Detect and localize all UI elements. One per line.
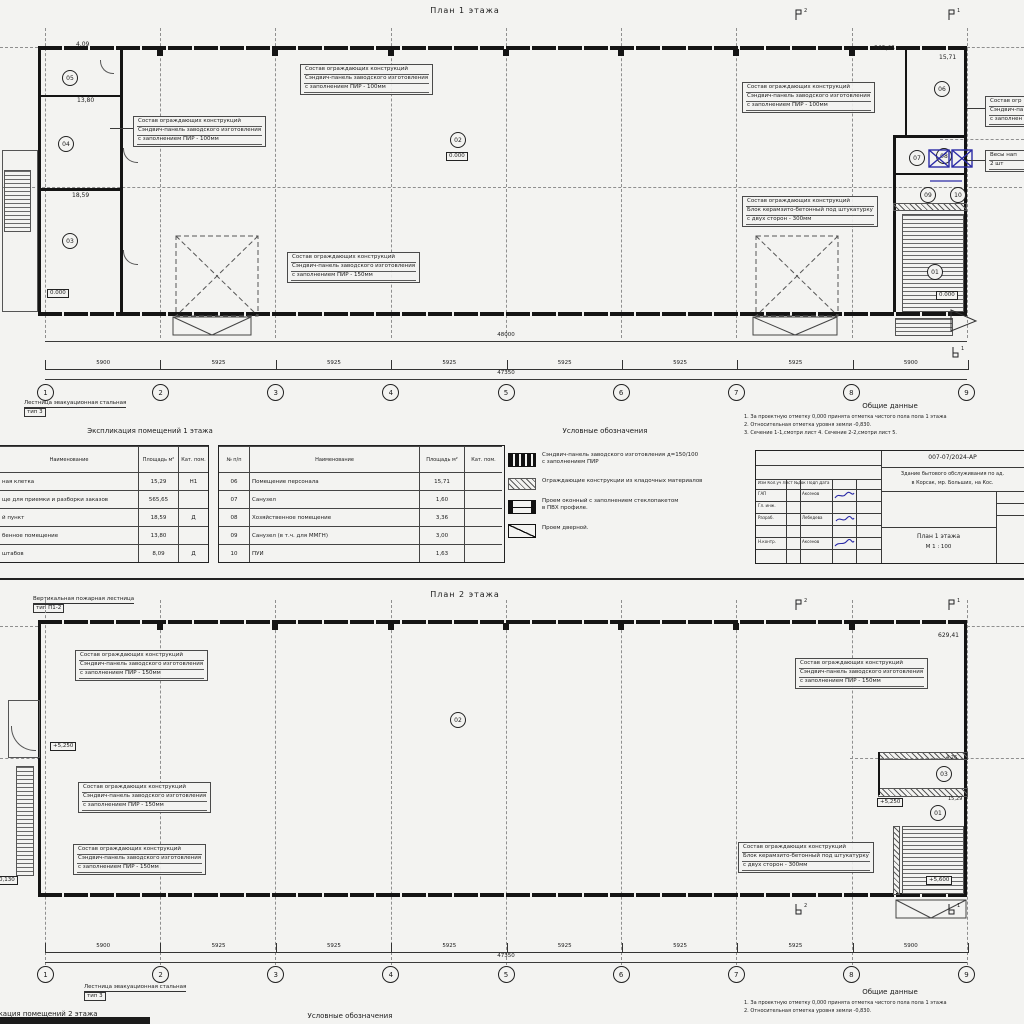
section-mark: 2 xyxy=(793,903,807,916)
callout-line: Состав ограждающих конструкций xyxy=(137,118,262,127)
callout-line: Состав ограждающих конструкций xyxy=(742,844,870,853)
room-area-cell: 565,65 xyxy=(138,490,178,508)
callout-line: с двух сторон - 300мм xyxy=(742,862,870,871)
callout-note: Состав ограждающих конструкций Сэндвич-п… xyxy=(287,252,420,283)
grid-bubble-row: 123456789 xyxy=(37,384,975,401)
callout-line: Состав ограждающих конструкций xyxy=(746,198,874,207)
callout-line: Сэндвич-панель заводского изготовления xyxy=(746,93,871,102)
wall xyxy=(38,620,41,897)
stamp-role: Н.контр. xyxy=(758,540,776,545)
callout-line: с двух сторон - 300мм xyxy=(746,216,874,225)
stamp-line xyxy=(756,479,881,480)
grid-axis-line xyxy=(967,600,968,965)
legend-line: с заполнением ПИР xyxy=(542,459,698,466)
section-flag-icon xyxy=(946,598,956,611)
callout-note: Состав ограждающих конструкций Блок кера… xyxy=(742,196,878,227)
callout-line: Состав ограждающих конструкций xyxy=(79,652,204,661)
room-area-cell: 15,71 xyxy=(419,472,464,490)
section-mark: 1 xyxy=(950,346,964,359)
callout-note-clipped: Весы нап 2 шт xyxy=(985,150,1024,172)
general-note: 2. Относительная отметка уровня земли -0… xyxy=(744,1008,1022,1016)
callout-line: Сэндвич-панель заводского изготовления xyxy=(77,855,202,864)
masonry-wall-hatch xyxy=(893,203,967,211)
room-category-cell xyxy=(178,526,208,544)
legend-symbol-door xyxy=(508,524,536,538)
stamp-role: Гл. инж. xyxy=(758,504,776,509)
stamp-line xyxy=(881,467,1024,468)
grid-axis-line xyxy=(967,47,1024,48)
fire-ladder-text: Вертикальная пожарная лестница xyxy=(33,596,134,604)
callout-line: с заполнен xyxy=(989,116,1024,125)
section-mark: 2 xyxy=(793,598,807,611)
elevation-mark: +5,250 xyxy=(50,742,76,751)
stamp-scale: М 1 : 100 xyxy=(881,544,996,551)
section-flag-icon xyxy=(946,8,956,21)
dimension-line xyxy=(45,379,967,380)
grid-axis-bubble: 1 xyxy=(37,966,54,983)
stamp-header-row: Изм Кол.уч Лист №док Подп Дата xyxy=(758,481,879,486)
stamp-name: Аксенов xyxy=(802,540,819,545)
grid-axis-line xyxy=(2,187,1022,188)
grid-axis-line xyxy=(967,626,1024,627)
room-number-cell: 09 xyxy=(219,526,249,544)
callout-line: Состав огр xyxy=(989,98,1024,107)
room-area-cell: 18,59 xyxy=(138,508,178,526)
room-category-cell xyxy=(464,490,502,508)
elevation-mark: 0.000 xyxy=(446,152,468,161)
room-category-cell xyxy=(464,544,502,562)
leader-line xyxy=(110,128,133,129)
partition-wall xyxy=(893,137,896,312)
legend-symbol-window xyxy=(508,500,536,514)
grid-axis-bubble: 8 xyxy=(843,384,860,401)
pier-mark xyxy=(272,49,278,56)
project-name-line: в Корсак, мр. Больших, на Кос. xyxy=(881,480,1024,487)
elevation-mark: +5,250 xyxy=(877,798,903,807)
grid-axis-line xyxy=(940,139,1024,140)
stair-type-tag: тип 3 xyxy=(24,408,46,417)
room-number-bubble: 06 xyxy=(934,81,950,97)
pier-mark xyxy=(849,623,855,630)
grid-axis-line xyxy=(736,28,737,338)
callout-note: Состав ограждающих конструкций Сэндвич-п… xyxy=(78,782,211,813)
grid-axis-bubble: 2 xyxy=(152,384,169,401)
room-number-cell: 06 xyxy=(219,472,249,490)
callout-line: Состав ограждающих конструкций xyxy=(746,84,871,93)
legend-line: в ПВХ профиле. xyxy=(542,505,678,512)
ramp-arrow xyxy=(950,309,978,333)
title-block: Изм Кол.уч Лист №док Подп Дата ГАП Аксен… xyxy=(755,450,1024,564)
legend-symbol-sandwich-panel xyxy=(508,453,536,467)
dimension-label: 5900 xyxy=(46,943,161,952)
callout-note: Состав ограждающих конструкций Блок кера… xyxy=(738,842,874,873)
dimension-label: 5925 xyxy=(738,943,853,952)
callout-line: Сэндвич-па xyxy=(989,107,1024,116)
grid-axis-line xyxy=(45,28,46,338)
callout-note: Состав ограждающих конструкций Сэндвич-п… xyxy=(742,82,875,113)
partition-wall xyxy=(878,752,880,795)
room-name-cell: ще для приемки и разборки заказов xyxy=(0,490,138,508)
callout-line: Сэндвич-панель заводского изготовления xyxy=(79,661,204,670)
callout-line: с заполнением ПИР - 100мм xyxy=(746,102,871,111)
callout-line: с заполнением ПИР - 150мм xyxy=(79,670,204,679)
stamp-drawing-title: План 1 этажа xyxy=(881,533,996,541)
stamp-line xyxy=(756,501,881,502)
section-flag-icon xyxy=(793,598,803,611)
general-note: 3. Сечение 1-1,смотри лист 4. Сечение 2-… xyxy=(744,430,1022,438)
section-mark: 2 xyxy=(793,8,807,21)
grid-axis-line xyxy=(506,28,507,338)
stamp-line xyxy=(881,491,1024,492)
table-edge-bar xyxy=(0,1017,150,1024)
pier-mark xyxy=(618,623,624,630)
room-number-cell: 10 xyxy=(219,544,249,562)
grid-axis-bubble: 4 xyxy=(382,384,399,401)
room-area-cell: 1,63 xyxy=(419,544,464,562)
stair-note-text: Лестница эвакуационная стальная xyxy=(84,984,186,992)
column-header: Кат. пом. xyxy=(464,446,502,472)
pier-mark xyxy=(272,623,278,630)
grid-axis-line xyxy=(275,28,276,338)
legend-line: Ограждающие конструкции из кладочных мат… xyxy=(542,478,702,485)
dimension-label: 5925 xyxy=(508,943,623,952)
elevation-mark: +5,600 xyxy=(926,876,952,885)
partition-wall xyxy=(893,135,967,138)
room-number-bubble: 03 xyxy=(936,766,952,782)
explication1-title: Экспликация помещений 1 этажа xyxy=(40,427,260,436)
section-mark: 1 xyxy=(946,598,960,611)
section-number: 1 xyxy=(961,346,964,353)
grid-axis-line xyxy=(852,600,853,965)
sheet-divider xyxy=(0,578,1024,580)
stamp-line xyxy=(856,479,857,563)
callout-line: Сэндвич-панель заводского изготовления xyxy=(799,669,924,678)
window-symbol-line xyxy=(509,507,535,508)
dimension-label: 5925 xyxy=(392,360,507,369)
wall xyxy=(38,893,967,897)
column-header: Наименование xyxy=(249,446,419,472)
column-header: Наименование xyxy=(0,446,138,472)
dashed-canopy-square xyxy=(175,235,259,317)
dimension-label: 5925 xyxy=(277,360,392,369)
room-number-bubble: 09 xyxy=(920,187,936,203)
section-flag-icon xyxy=(950,346,960,359)
room-number-bubble: 04 xyxy=(58,136,74,152)
general2-title: Общие данные xyxy=(760,988,1020,997)
legend-item-text: Проем дверной. xyxy=(542,525,588,532)
pier-mark xyxy=(618,49,624,56)
door-swing-arc xyxy=(123,250,138,265)
callout-note: Состав ограждающих конструкций Сэндвич-п… xyxy=(73,844,206,875)
legend-line: Сэндвич-панель заводского изготовления д… xyxy=(542,452,698,459)
room-name-cell: й пункт xyxy=(0,508,138,526)
pier-mark xyxy=(157,49,163,56)
explication1-table-right: № п/п Наименование Площадь м² Кат. пом. … xyxy=(218,445,505,563)
callout-line: Состав ограждающих конструкций xyxy=(82,784,207,793)
section-number: 2 xyxy=(804,8,807,15)
section-number: 1 xyxy=(957,903,960,910)
column-header: Площадь м² xyxy=(419,446,464,472)
grid-axis-line xyxy=(506,600,507,965)
stamp-line xyxy=(996,491,997,563)
callout-line: с заполнением ПИР - 150мм xyxy=(799,678,924,687)
grid-axis-bubble: 4 xyxy=(382,966,399,983)
dimension-line xyxy=(45,962,967,963)
room-area-cell: 15,29 xyxy=(138,472,178,490)
dimension-row: 59005925592559255925592559255900 xyxy=(45,360,969,370)
room-category-cell: Д xyxy=(178,508,208,526)
legend-line: Проем дверной. xyxy=(542,525,588,532)
legend-symbol-masonry xyxy=(508,478,536,490)
callout-line: Состав ограждающих конструкций xyxy=(799,660,924,669)
signature xyxy=(834,491,855,500)
section-number: 1 xyxy=(957,8,960,15)
signature xyxy=(834,515,855,524)
callout-line: Блок керамзито-бетонный под штукатурку xyxy=(742,853,870,862)
room-name-cell: Хозяйственное помещение xyxy=(249,508,419,526)
callout-line: с заполнением ПИР - 100мм xyxy=(304,84,429,93)
grid-axis-line xyxy=(736,600,737,965)
room-category-cell xyxy=(464,526,502,544)
dimension-label: 5900 xyxy=(46,360,161,369)
grid-axis-bubble: 5 xyxy=(498,384,515,401)
door-swing-arc xyxy=(100,60,114,74)
dimension-label: 5900 xyxy=(854,360,968,369)
section-flag-icon xyxy=(793,903,803,916)
callout-line: Сэндвич-панель заводского изготовления xyxy=(82,793,207,802)
dimension-label: 5900 xyxy=(854,943,968,952)
grid-axis-line xyxy=(45,600,46,965)
callout-line: с заполнением ПИР - 150мм xyxy=(291,272,416,281)
partition-wall xyxy=(38,188,122,191)
stamp-line xyxy=(996,515,1024,516)
grid-axis-bubble: 3 xyxy=(267,966,284,983)
callout-line: Сэндвич-панель заводского изготовления xyxy=(291,263,416,272)
callout-note: Состав ограждающих конструкций Сэндвич-п… xyxy=(300,64,433,95)
pier-mark xyxy=(388,49,394,56)
pier-mark xyxy=(388,623,394,630)
pier-mark xyxy=(157,623,163,630)
dimension-row: 59005925592559255925592559255900 xyxy=(45,943,969,953)
section-mark: 1 xyxy=(946,903,960,916)
grid-axis-bubble: 6 xyxy=(613,384,630,401)
dimension-label: 5925 xyxy=(508,360,623,369)
legend-item-text: Сэндвич-панель заводского изготовления д… xyxy=(542,452,698,466)
blue-cross-marks xyxy=(928,148,974,188)
area-label: 565,65 xyxy=(874,45,895,53)
column-header: Площадь м² xyxy=(138,446,178,472)
leader-line xyxy=(967,108,985,109)
area-label: 4,09 xyxy=(76,41,89,49)
section-number: 1 xyxy=(957,598,960,605)
section-number: 2 xyxy=(804,903,807,910)
fire-ladder-type-tag: тип П1-2 xyxy=(33,604,64,613)
elevation-mark: -0,130 xyxy=(0,876,18,885)
room-number-cell: 08 xyxy=(219,508,249,526)
general-note: 2. Относительная отметка уровня земли -0… xyxy=(744,422,1022,430)
grid-axis-bubble: 5 xyxy=(498,966,515,983)
section-number: 2 xyxy=(804,598,807,605)
grid-axis-bubble: 1 xyxy=(37,384,54,401)
stamp-line xyxy=(881,527,996,528)
exterior-ladder-hatch xyxy=(16,766,34,876)
callout-note: Состав ограждающих конструкций Сэндвич-п… xyxy=(133,116,266,147)
column-header: Кат. пом. xyxy=(178,446,208,472)
stamp-line xyxy=(756,465,881,466)
grid-axis-line xyxy=(160,28,161,338)
stamp-line xyxy=(756,513,881,514)
room-number-bubble: 05 xyxy=(62,70,78,86)
document-number: 007-07/2024-АР xyxy=(881,454,1024,462)
overall-dimension: 48000 xyxy=(45,332,967,339)
overall-dimension: 47350 xyxy=(45,953,967,960)
legend-title: Условные обозначения xyxy=(505,427,705,436)
general-note: 1. За проектную отметку 0,000 принята от… xyxy=(744,414,1022,422)
room-number-bubble: 03 xyxy=(62,233,78,249)
pier-mark xyxy=(733,623,739,630)
column-header: № п/п xyxy=(219,446,249,472)
stamp-line xyxy=(756,537,881,538)
room-category-cell xyxy=(464,472,502,490)
callout-note-clipped: Состав огр Сэндвич-па с заполнен xyxy=(985,96,1024,127)
area-label: 18,59 xyxy=(72,192,89,200)
overall-dimension: 47350 xyxy=(45,370,967,377)
grid-axis-bubble: 7 xyxy=(728,384,745,401)
legend-item-text: Проем оконный с заполнением стеклопакето… xyxy=(542,498,678,512)
elevation-mark: 0.000 xyxy=(936,291,958,300)
callout-line: 2 шт xyxy=(989,161,1024,170)
fire-ladder-note: Вертикальная пожарная лестница тип П1-2 xyxy=(33,596,134,613)
room-category-cell xyxy=(178,490,208,508)
wall xyxy=(38,46,41,316)
stair-note: Лестница эвакуационная стальная тип 3 xyxy=(24,400,126,417)
callout-note: Состав ограждающих конструкций Сэндвич-п… xyxy=(795,658,928,689)
drawing-sheet: { "colors": {"paper":"#f3f3f1","ink":"#1… xyxy=(0,0,1024,1024)
signature xyxy=(834,539,855,548)
callout-line: Состав ограждающих конструкций xyxy=(77,846,202,855)
room-number-cell: 07 xyxy=(219,490,249,508)
door-swing-arc xyxy=(123,148,138,163)
grid-axis-bubble: 3 xyxy=(267,384,284,401)
pier-mark xyxy=(503,623,509,630)
dimension-label: 5925 xyxy=(277,943,392,952)
callout-line: Сэндвич-панель заводского изготовления xyxy=(137,127,262,136)
callout-line: Состав ограждающих конструкций xyxy=(304,66,429,75)
room-number-bubble: 10 xyxy=(950,187,966,203)
room-number-bubble: 07 xyxy=(909,150,925,166)
room-area-cell: 3,00 xyxy=(419,526,464,544)
room-number-bubble: 02 xyxy=(450,132,466,148)
callout-line: Блок керамзито-бетонный под штукатурку xyxy=(746,207,874,216)
grid-bubble-row: 123456789 xyxy=(37,966,975,983)
room-number-bubble: 01 xyxy=(930,805,946,821)
section-flag-icon xyxy=(793,8,803,21)
room-name-cell: штабов xyxy=(0,544,138,562)
grid-axis-line xyxy=(0,626,38,627)
grid-axis-bubble: 9 xyxy=(958,966,975,983)
room-category-cell xyxy=(464,508,502,526)
dimension-label: 5925 xyxy=(392,943,507,952)
room-name-cell: ПУИ xyxy=(249,544,419,562)
stamp-line xyxy=(800,479,801,563)
general2-notes: 1. За проектную отметку 0,000 принята от… xyxy=(744,1000,1022,1024)
room-name-cell: Санузел (в т.ч. для ММГН) xyxy=(249,526,419,544)
plan2-title: План 2 этажа xyxy=(0,590,930,600)
section-flag-icon xyxy=(946,903,956,916)
legend-line: Проем оконный с заполнением стеклопакето… xyxy=(542,498,678,505)
legend2-title: Условные обозначения xyxy=(250,1012,450,1021)
dashed-canopy-square xyxy=(755,235,839,317)
pier-mark xyxy=(733,49,739,56)
callout-line: Весы нап xyxy=(989,152,1024,161)
room-area-cell: 3,36 xyxy=(419,508,464,526)
callout-line: Сэндвич-панель заводского изготовления xyxy=(304,75,429,84)
stair-type-tag: тип 3 xyxy=(84,992,106,1001)
room-number-bubble: 01 xyxy=(927,264,943,280)
callout-line: Состав ограждающих конструкций xyxy=(291,254,416,263)
area-label: 4,26 xyxy=(946,755,957,762)
dimension-label: 5925 xyxy=(623,360,738,369)
callout-line: с заполнением ПИР - 150мм xyxy=(77,864,202,873)
project-name-line: Здание бытового обслуживания по ад. xyxy=(881,471,1024,478)
grid-axis-line xyxy=(621,600,622,965)
masonry-wall-hatch xyxy=(893,826,900,895)
general-data-title: Общие данные xyxy=(760,402,1020,411)
callout-line: с заполнением ПИР - 100мм xyxy=(137,136,262,145)
area-label: 13,80 xyxy=(77,97,94,105)
room-number-bubble: 02 xyxy=(450,712,466,728)
stair-note-text: Лестница эвакуационная стальная xyxy=(24,400,126,408)
dimension-line xyxy=(45,341,967,342)
stair-note: Лестница эвакуационная стальная тип 3 xyxy=(84,984,186,1001)
stamp-line xyxy=(756,489,881,490)
plan1-title: План 1 этажа xyxy=(0,6,930,16)
callout-line: с заполнением ПИР - 150мм xyxy=(82,802,207,811)
explication1-table-left: Наименование Площадь м² Кат. пом. ная кл… xyxy=(0,445,209,563)
dimension-label: 5925 xyxy=(161,360,276,369)
pier-mark xyxy=(503,49,509,56)
dimension-label: 5925 xyxy=(623,943,738,952)
grid-axis-line xyxy=(0,758,40,759)
stamp-name: Лебедева xyxy=(802,516,822,521)
grid-axis-line xyxy=(391,600,392,965)
dimension-label: 5925 xyxy=(161,943,276,952)
grid-axis-line xyxy=(852,28,853,338)
stamp-name: Аксенов xyxy=(802,492,819,497)
stamp-line xyxy=(786,479,787,563)
area-label: 629,41 xyxy=(938,632,959,640)
exterior-stair-hatch xyxy=(4,170,31,232)
grid-axis-bubble: 6 xyxy=(613,966,630,983)
grid-axis-line xyxy=(0,47,38,48)
general-data-notes: 1. За проектную отметку 0,000 принята от… xyxy=(744,414,1022,437)
stamp-line xyxy=(832,479,833,563)
callout-note: Состав ограждающих конструкций Сэндвич-п… xyxy=(75,650,208,681)
grid-axis-bubble: 2 xyxy=(152,966,169,983)
room-area-cell: 8,09 xyxy=(138,544,178,562)
general-note: 1. За проектную отметку 0,000 принята от… xyxy=(744,1000,1022,1008)
room-category-cell: Д xyxy=(178,544,208,562)
partition-wall xyxy=(905,48,907,137)
stamp-line xyxy=(996,503,1024,504)
grid-axis-line xyxy=(275,600,276,965)
stamp-line xyxy=(756,549,881,550)
pier-mark xyxy=(849,49,855,56)
section-mark: 1 xyxy=(946,8,960,21)
elevation-mark: 0.000 xyxy=(47,289,69,298)
grid-axis-bubble: 8 xyxy=(843,966,860,983)
grid-axis-bubble: 7 xyxy=(728,966,745,983)
